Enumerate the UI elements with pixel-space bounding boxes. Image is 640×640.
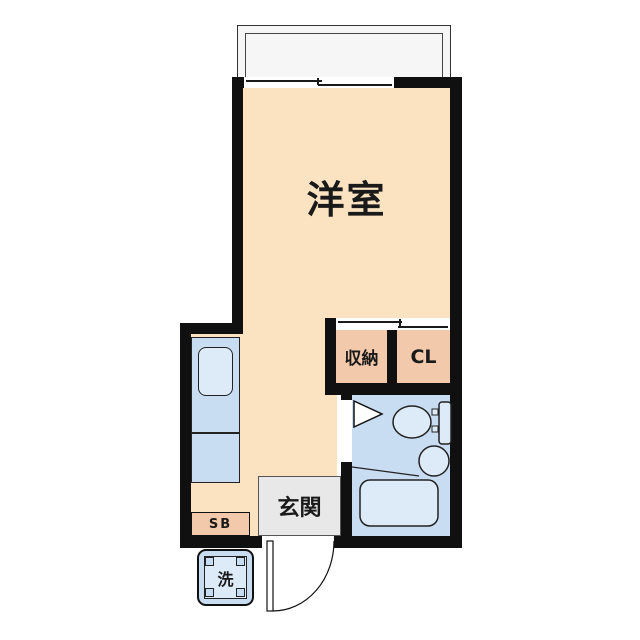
bathroom-partition-line (352, 467, 419, 476)
toilet-hinge-bottom-icon (432, 426, 438, 432)
fixture-overlay (0, 0, 640, 640)
floor-plan: 収納 CL 玄関 SB 洗 洋室 (0, 0, 640, 640)
entry-door-leaf (267, 541, 273, 611)
bathtub-icon (360, 480, 438, 526)
toilet-hinge-top-icon (432, 409, 438, 415)
washbasin-icon (419, 446, 449, 476)
bathroom-door-icon (354, 401, 382, 427)
toilet-bowl-icon (393, 406, 431, 438)
toilet-tank-icon (439, 402, 451, 444)
entry-door-swing-arc (273, 541, 334, 611)
